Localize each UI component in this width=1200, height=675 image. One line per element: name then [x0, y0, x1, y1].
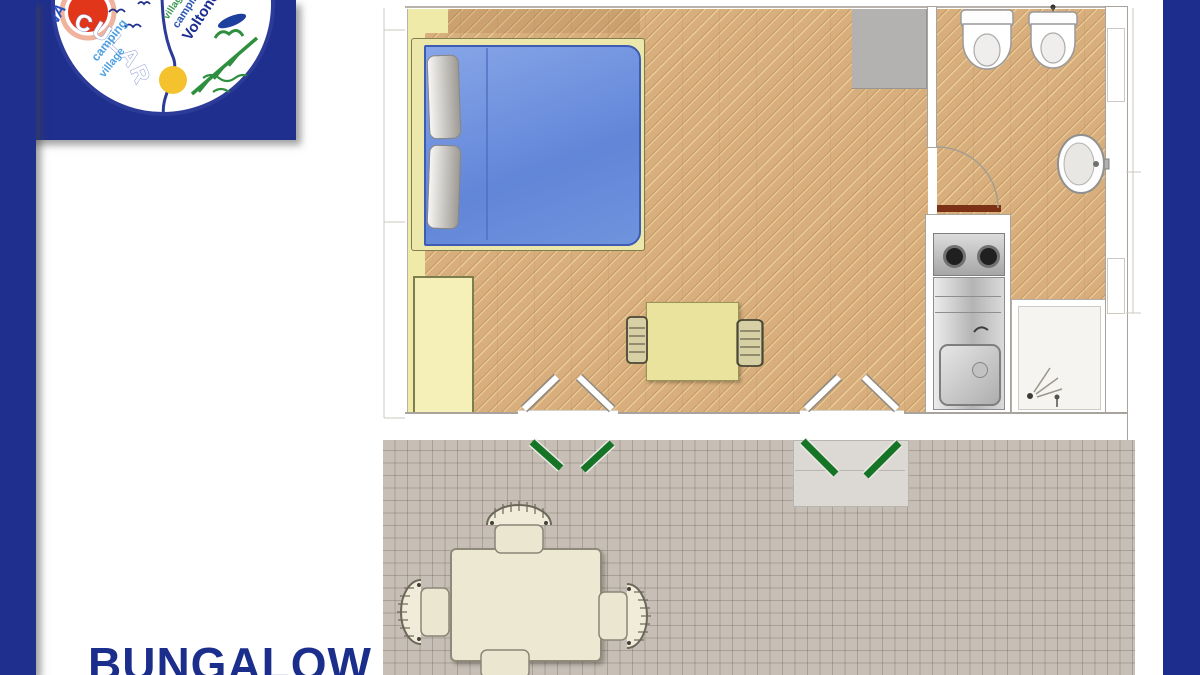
- outdoor-chair-left: [397, 580, 449, 644]
- bathroom-door-arc: [937, 147, 998, 208]
- toilet: [961, 10, 1013, 69]
- bungalow-plan-page: NA CULARA camping village village campin…: [0, 0, 1200, 675]
- green-shutters: [532, 441, 899, 476]
- kitchen-faucet-icon: [974, 327, 988, 332]
- indoor-chair-left: [627, 317, 647, 363]
- page-title: BUNGALOW: [88, 641, 372, 675]
- campsite-logo: NA CULARA camping village village campin…: [47, 0, 279, 120]
- outdoor-chair-bottom: [473, 650, 537, 675]
- outdoor-chair-right: [599, 584, 651, 648]
- washbasin: [1058, 135, 1109, 193]
- outdoor-chair-top: [487, 501, 551, 553]
- navy-left-bar: [0, 0, 36, 675]
- bidet: [1029, 5, 1077, 69]
- indoor-chair-right: [738, 320, 763, 366]
- french-door-leaves: [524, 377, 897, 409]
- shower-spray-icon: [1027, 368, 1062, 407]
- yellow-sun-icon: [159, 66, 187, 94]
- navy-right-band: [1163, 0, 1200, 675]
